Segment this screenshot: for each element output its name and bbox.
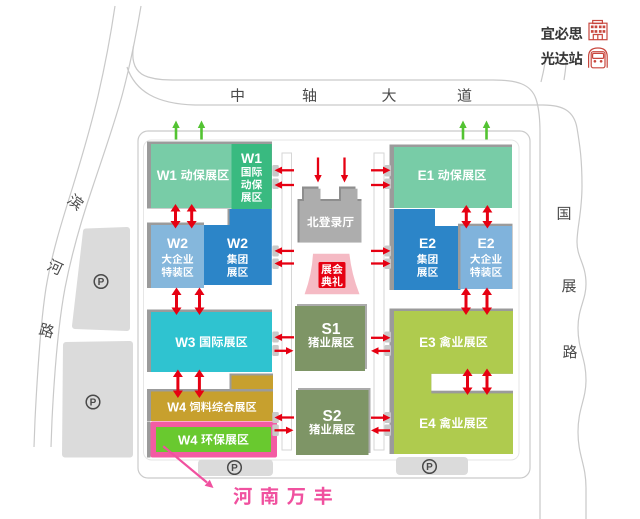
svg-text:W1: W1	[241, 150, 262, 166]
svg-text:P: P	[426, 462, 433, 473]
svg-text:P: P	[231, 463, 238, 474]
svg-text:W2: W2	[227, 235, 248, 251]
svg-text:E2: E2	[477, 235, 494, 251]
svg-text:P: P	[90, 398, 97, 409]
svg-text:E4: E4	[419, 416, 436, 431]
svg-text:W3: W3	[175, 335, 196, 350]
svg-text:W4: W4	[178, 432, 198, 447]
svg-text:W2: W2	[167, 235, 188, 251]
svg-text:W1: W1	[157, 168, 178, 183]
svg-text:E1: E1	[418, 168, 435, 183]
svg-text:P: P	[98, 277, 105, 288]
svg-text:E2: E2	[419, 235, 436, 251]
svg-text:S1: S1	[322, 321, 341, 338]
svg-text:S2: S2	[323, 408, 342, 425]
svg-text:E3: E3	[419, 335, 436, 350]
svg-text:W4: W4	[167, 401, 186, 415]
